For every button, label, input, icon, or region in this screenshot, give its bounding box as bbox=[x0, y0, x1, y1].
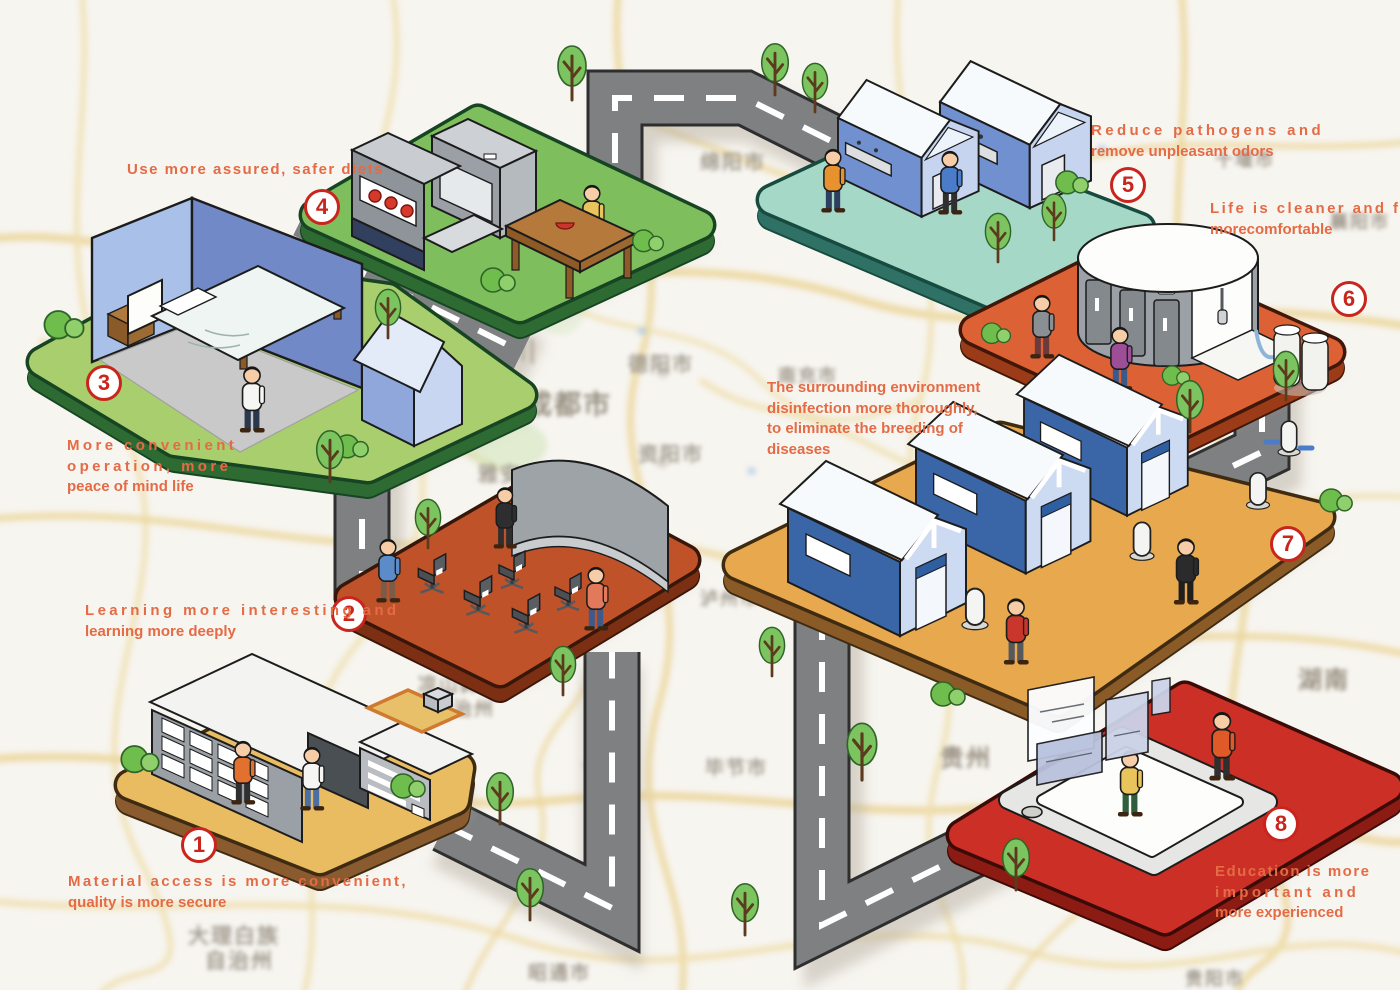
tree-icon bbox=[550, 646, 575, 695]
station-1-badge: 1 bbox=[181, 827, 217, 863]
caption-line: Learning more interesting and bbox=[85, 601, 399, 622]
sanitizer-icon bbox=[962, 589, 988, 630]
station-3-caption: More convenient operation, more peace of… bbox=[67, 436, 237, 498]
caption-line: peace of mind life bbox=[67, 477, 237, 498]
sanitizer-icon bbox=[1247, 473, 1270, 509]
station-8-caption: Education is more important and more exp… bbox=[1215, 862, 1371, 924]
caption-line: more experienced bbox=[1215, 903, 1371, 924]
station-2-caption: Learning more interesting and learning m… bbox=[85, 601, 399, 642]
caption-line: operation, more bbox=[67, 457, 237, 478]
caption-line: to eliminate the breeding of bbox=[767, 419, 980, 440]
station-6-caption: Life is cleaner and feel morecomfortable bbox=[1210, 199, 1400, 240]
caption-line: important and bbox=[1215, 883, 1371, 904]
sanitizer-icon bbox=[1130, 522, 1154, 560]
caption-line: Life is cleaner and feel bbox=[1210, 199, 1400, 220]
infographic-canvas: 绵阳市 十堰市 襄阳市 四川 德阳市 成都市 资阳市 雅安 南充市 泸州市 凉山… bbox=[0, 0, 1400, 990]
bush-icon bbox=[1320, 489, 1352, 512]
station-5-caption: Reduce pathogens and remove unpleasant o… bbox=[1091, 121, 1324, 162]
caption-line: learning more deeply bbox=[85, 622, 399, 643]
station-4-badge: 4 bbox=[304, 189, 340, 225]
tree-icon bbox=[558, 46, 586, 100]
station-4-caption: Use more assured, safer diets bbox=[127, 160, 384, 181]
station-8-badge: 8 bbox=[1263, 806, 1299, 842]
station-7-badge: 7 bbox=[1270, 526, 1306, 562]
station-1-scene bbox=[121, 654, 474, 880]
bush-icon bbox=[44, 311, 83, 339]
caption-line: remove unpleasant odors bbox=[1091, 142, 1324, 163]
sprayer-icon bbox=[1278, 421, 1300, 456]
caption-line: diseases bbox=[767, 440, 980, 461]
station-1-caption: Material access is more convenient, qual… bbox=[68, 872, 408, 913]
caption-line: Reduce pathogens and bbox=[1091, 121, 1324, 142]
caption-line: Material access is more convenient, bbox=[68, 872, 408, 893]
caption-line: quality is more secure bbox=[68, 893, 408, 914]
caption-line: Education is more bbox=[1215, 862, 1371, 883]
station-7-caption: The surrounding environment disinfection… bbox=[767, 378, 980, 461]
station-3-badge: 3 bbox=[86, 365, 122, 401]
caption-line: The surrounding environment bbox=[767, 378, 980, 399]
tree-icon bbox=[759, 627, 784, 676]
caption-line: Use more assured, safer diets bbox=[127, 160, 384, 181]
caption-line: morecomfortable bbox=[1210, 220, 1400, 241]
station-6-badge: 6 bbox=[1331, 281, 1367, 317]
tree-icon bbox=[732, 884, 759, 935]
station-5-badge: 5 bbox=[1110, 167, 1146, 203]
caption-line: More convenient bbox=[67, 436, 237, 457]
caption-line: disinfection more thoroughly, bbox=[767, 399, 980, 420]
